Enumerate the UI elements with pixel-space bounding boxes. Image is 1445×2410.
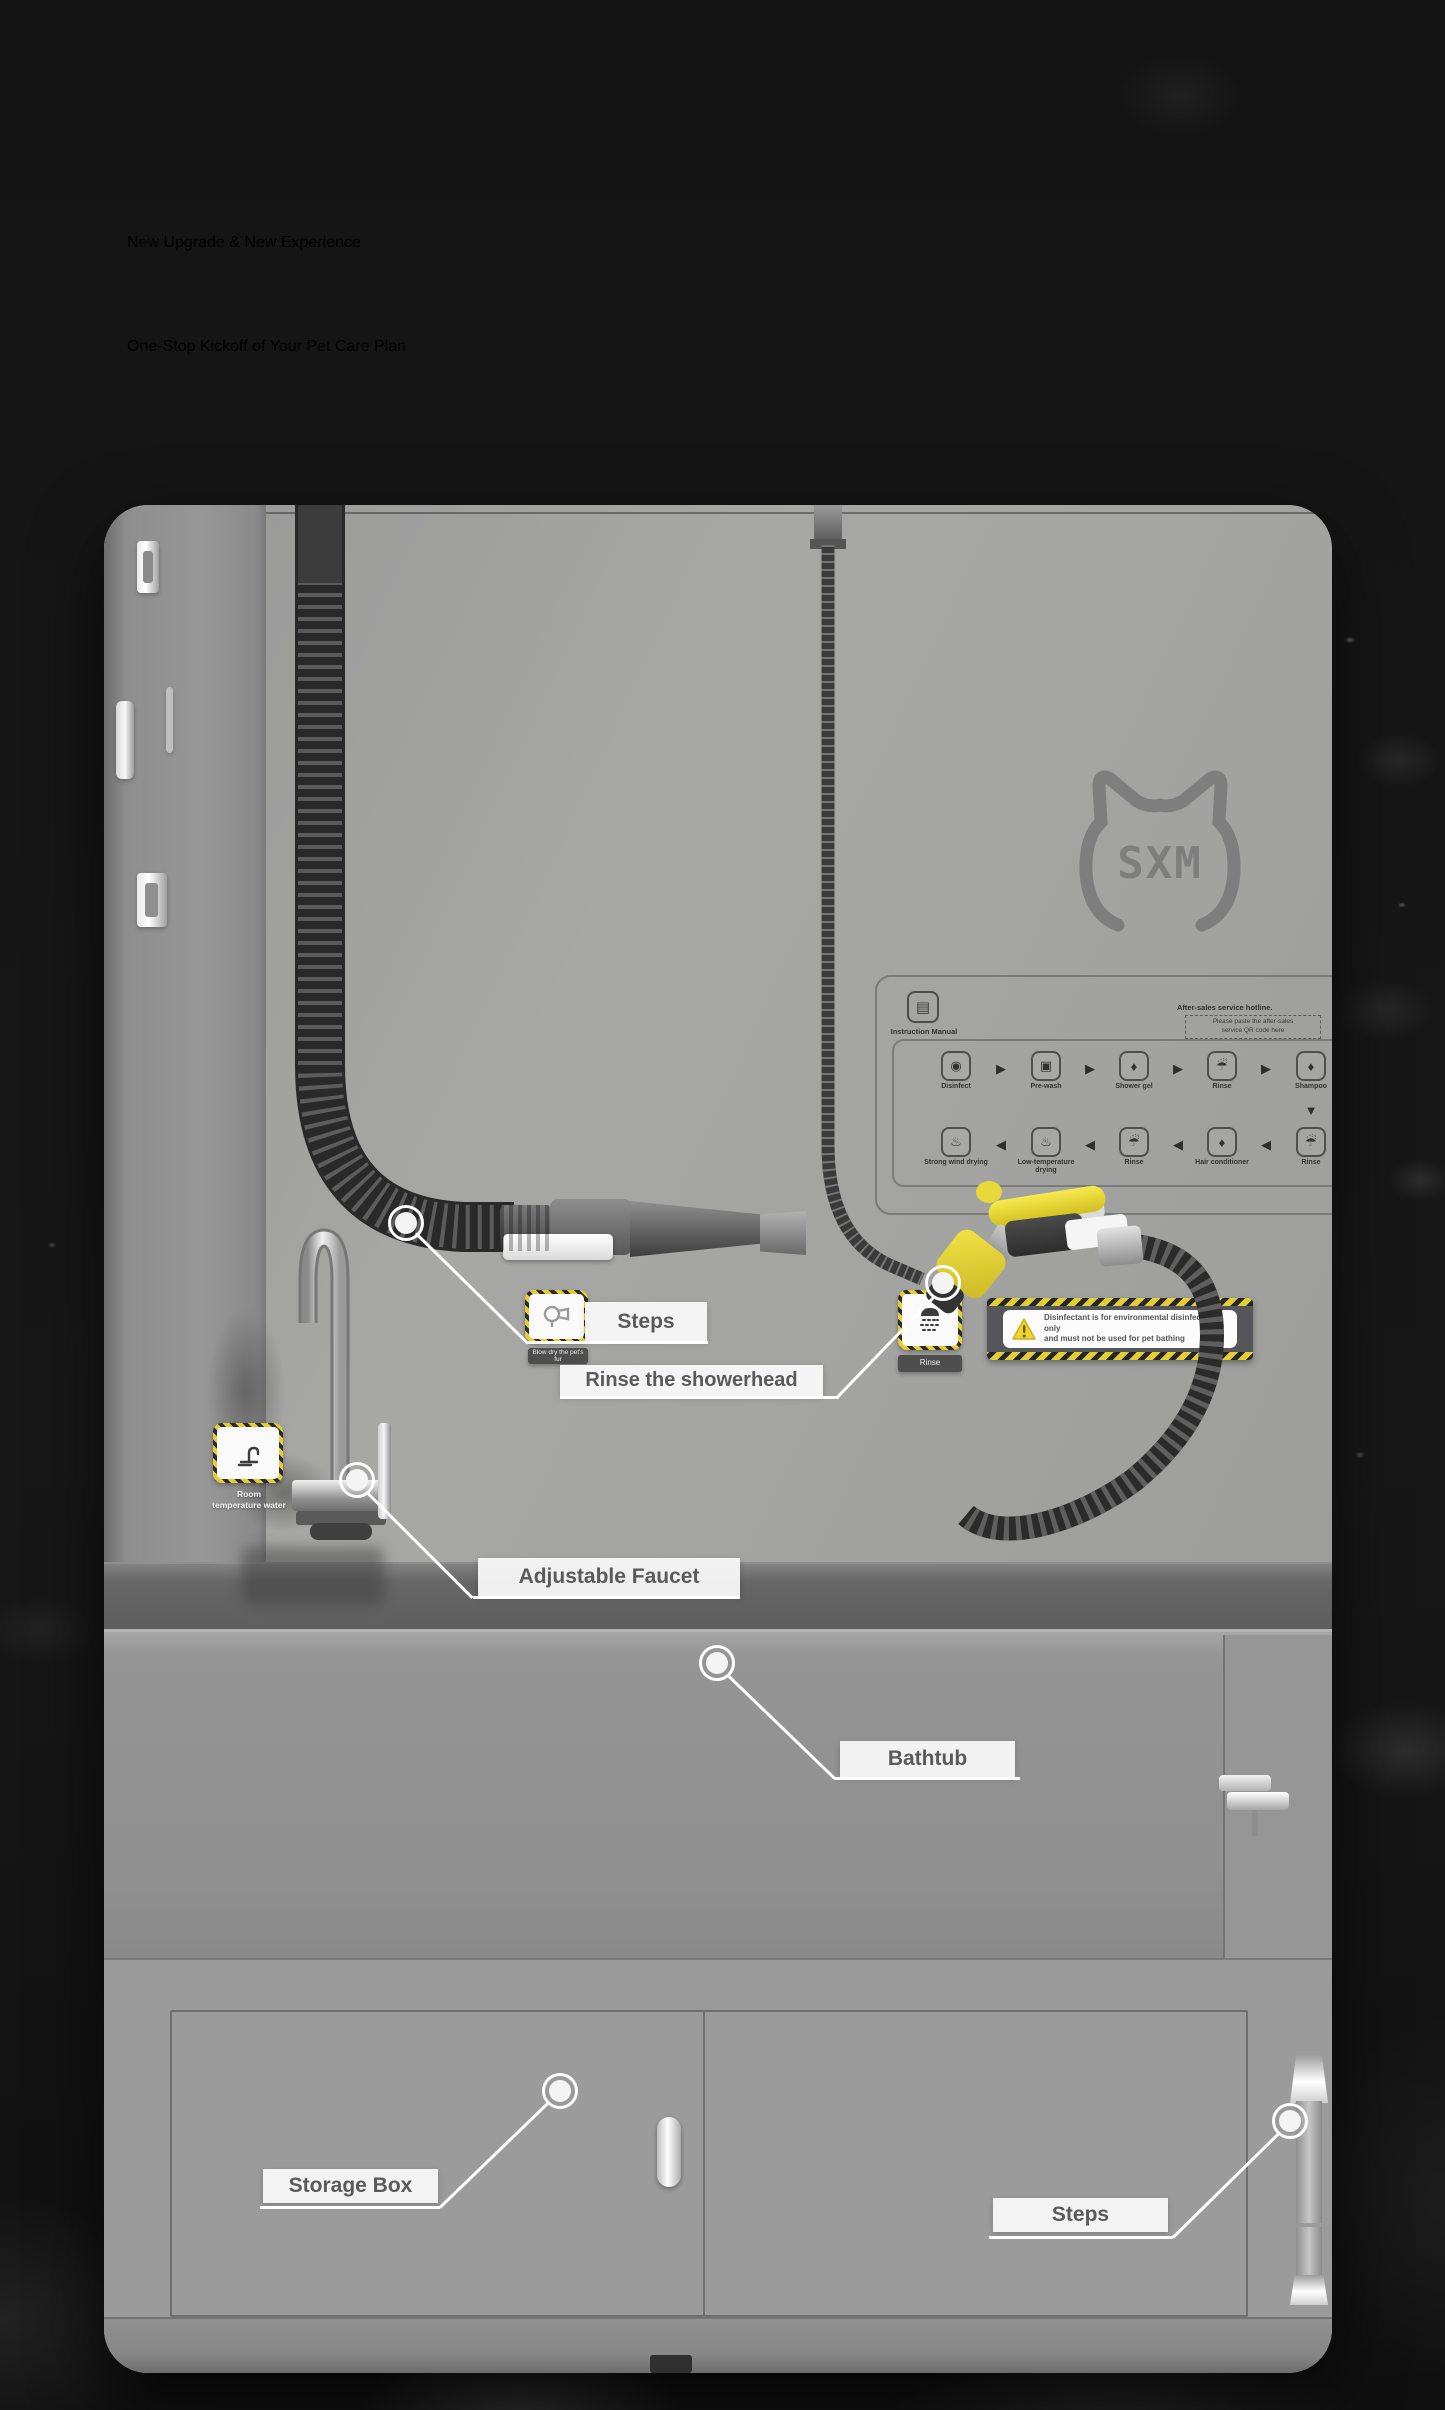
faucet-base — [310, 1523, 372, 1540]
thin-hose — [810, 505, 922, 1279]
showerhead-ridges — [500, 1205, 552, 1251]
callout-underline — [528, 1341, 708, 1344]
faucet-pipe — [308, 1238, 340, 1490]
product-panel: SXM ▤ Instruction Manual After-sales ser… — [104, 505, 1332, 2373]
spiral-hose — [966, 1245, 1212, 1529]
callout-underline — [834, 1777, 1020, 1780]
callout-underline — [260, 2206, 440, 2209]
callout-marker-rinse-showerhead — [925, 1265, 961, 1301]
callout-underline — [473, 1596, 740, 1599]
hoses-layer — [104, 505, 1332, 2373]
callout-label-steps-bottom: Steps — [993, 2198, 1168, 2232]
showerhead-flat-tip — [760, 1211, 806, 1255]
callout-underline — [989, 2236, 1173, 2239]
headline-line2: One-Stop Kickoff of Your Pet Care Plan — [127, 338, 406, 356]
headline-line1: New Upgrade & New Experience — [127, 234, 361, 252]
corrugated-hose — [320, 505, 514, 1227]
callout-label-storage-box: Storage Box — [263, 2169, 438, 2203]
sprayer-hose-fitting — [1096, 1225, 1143, 1267]
callout-label-adjustable-faucet: Adjustable Faucet — [478, 1558, 740, 1596]
callout-label-rinse-showerhead: Rinse the showerhead — [560, 1365, 823, 1396]
callout-label-steps-top: Steps — [585, 1302, 707, 1341]
callout-label-bathtub: Bathtub — [840, 1741, 1015, 1777]
page: { "heading": { "line1": "New Upgrade & N… — [0, 0, 1445, 2410]
callout-underline — [560, 1396, 839, 1399]
